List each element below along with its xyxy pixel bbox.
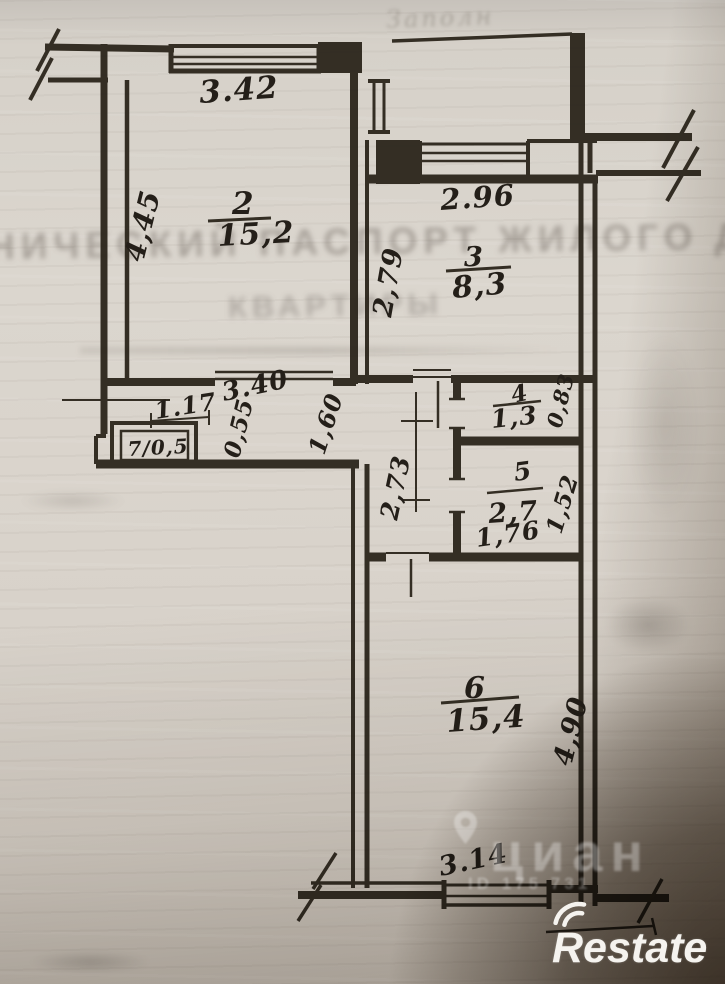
dim-label-3-42: 3.42 (198, 70, 280, 111)
window-room3 (420, 141, 528, 179)
balcony-rail (392, 34, 572, 41)
room-5-number: 5 (512, 456, 534, 487)
floor-plan-photo: НИЧЕСКИЙ ПАСПОРТ ЖИЛОГО ДОМ КВАРТИРЫ Зап… (0, 0, 725, 984)
room-3-area: 8,3 (450, 266, 509, 306)
room-2-area: 15,2 (217, 215, 296, 254)
dim-label-1-76: 1,76 (474, 515, 542, 553)
dim-label-4-90: 4,90 (548, 694, 595, 769)
room-6-area: 15,4 (445, 699, 527, 740)
window-balcony (368, 81, 390, 132)
cian-id-watermark: ID 175 731 (468, 874, 591, 894)
dim-label-1-60: 1,60 (302, 389, 349, 457)
window-room2 (169, 44, 321, 73)
dim-label-2-73: 2,73 (374, 453, 416, 523)
room-4-area: 1,3 (490, 400, 539, 434)
dim-label-1-52: 1,52 (541, 471, 584, 536)
dim-label-2-96: 2.96 (438, 178, 516, 217)
restate-logo: Restate (552, 924, 707, 973)
door-room3 (413, 370, 451, 377)
wall-break-icon (298, 885, 321, 921)
dim-label-2-79: 2,79 (367, 245, 410, 320)
room-7-label: 7/0,5 (127, 434, 189, 461)
wall-corner-block (570, 33, 585, 136)
map-pin-icon (452, 810, 479, 845)
wall-segment (45, 47, 174, 49)
walls (30, 29, 701, 935)
room-5-fraction-line (487, 488, 543, 493)
